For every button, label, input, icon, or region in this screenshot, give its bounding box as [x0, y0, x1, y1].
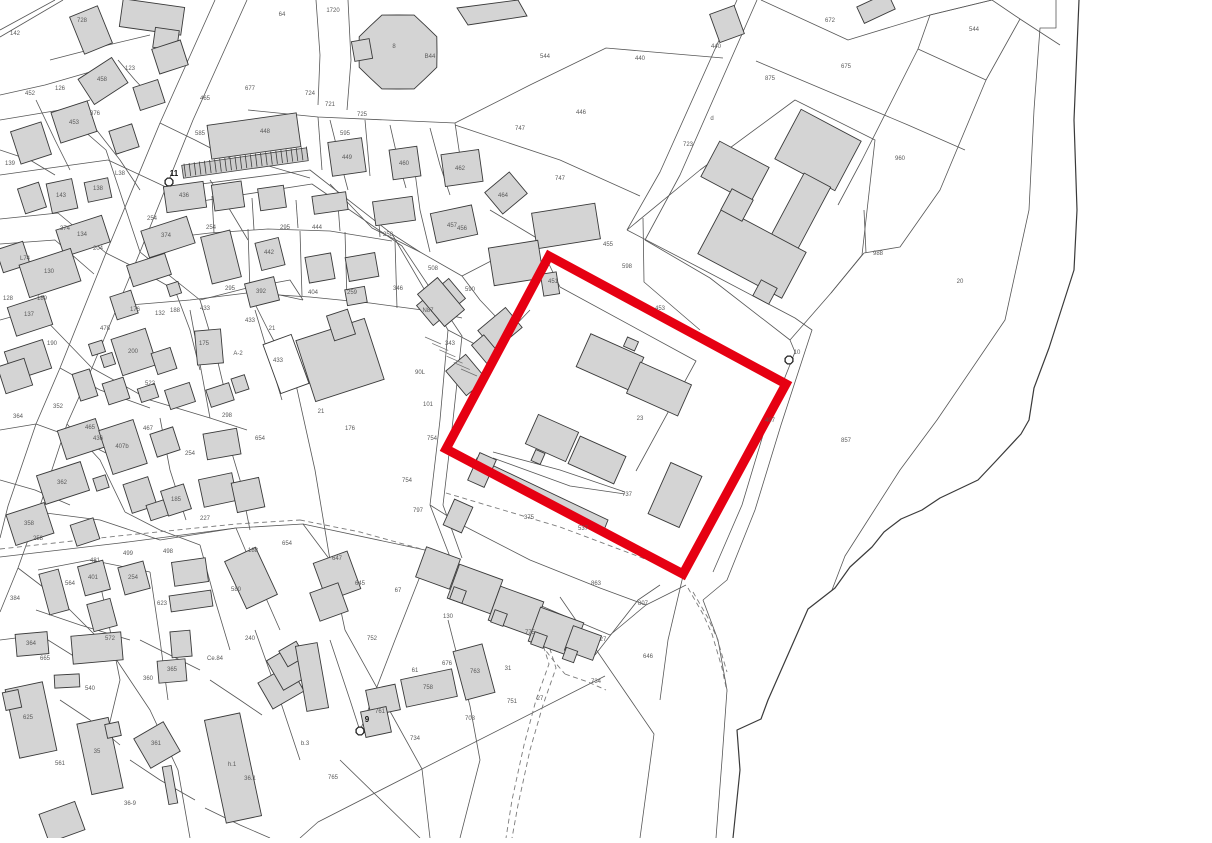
svg-text:20: 20: [957, 279, 964, 285]
svg-text:703: 703: [465, 716, 476, 722]
svg-text:763: 763: [470, 669, 481, 675]
svg-text:758: 758: [423, 685, 434, 691]
svg-text:440: 440: [711, 44, 722, 50]
svg-text:458: 458: [97, 77, 108, 83]
svg-text:623: 623: [157, 601, 168, 607]
svg-text:188: 188: [170, 308, 181, 314]
svg-text:754: 754: [427, 436, 438, 442]
svg-text:132: 132: [155, 311, 166, 317]
svg-text:1720: 1720: [326, 8, 340, 14]
svg-text:A-2: A-2: [233, 351, 243, 357]
svg-text:724: 724: [305, 91, 316, 97]
svg-text:734: 734: [591, 679, 602, 685]
svg-text:725: 725: [357, 112, 368, 118]
svg-text:142: 142: [10, 31, 21, 37]
svg-text:444: 444: [312, 225, 323, 231]
svg-text:453: 453: [655, 306, 666, 312]
svg-text:465: 465: [200, 96, 211, 102]
svg-text:64: 64: [279, 12, 286, 18]
svg-text:L74: L74: [20, 256, 31, 262]
svg-text:139: 139: [5, 161, 16, 167]
svg-text:352: 352: [53, 404, 64, 410]
svg-text:665: 665: [40, 656, 51, 662]
svg-text:564: 564: [65, 581, 76, 587]
svg-text:478: 478: [100, 326, 111, 332]
svg-text:295: 295: [225, 286, 236, 292]
svg-text:404: 404: [308, 290, 319, 296]
svg-text:254: 254: [147, 216, 158, 222]
svg-text:734: 734: [410, 736, 421, 742]
svg-text:407: 407: [765, 418, 776, 424]
svg-text:407b: 407b: [115, 444, 129, 450]
svg-text:90L: 90L: [415, 370, 426, 376]
svg-text:61: 61: [412, 668, 419, 674]
svg-text:362: 362: [57, 480, 68, 486]
svg-text:456: 456: [457, 226, 468, 232]
svg-text:460: 460: [399, 161, 410, 167]
svg-text:625: 625: [23, 715, 34, 721]
svg-text:765: 765: [328, 775, 339, 781]
svg-text:227: 227: [200, 516, 211, 522]
svg-text:295: 295: [280, 225, 291, 231]
svg-text:467: 467: [143, 426, 154, 432]
svg-text:364: 364: [26, 641, 37, 647]
svg-text:561: 561: [55, 761, 66, 767]
svg-text:452: 452: [25, 91, 36, 97]
svg-text:797: 797: [413, 508, 424, 514]
svg-text:572: 572: [105, 636, 116, 642]
svg-text:747: 747: [555, 176, 566, 182]
svg-text:375: 375: [524, 515, 535, 521]
svg-text:259: 259: [347, 290, 358, 296]
svg-text:128: 128: [3, 296, 14, 302]
svg-text:L38: L38: [115, 171, 126, 177]
svg-text:365: 365: [167, 667, 178, 673]
svg-text:677: 677: [245, 86, 256, 92]
svg-text:254: 254: [128, 575, 139, 581]
svg-text:857: 857: [841, 438, 852, 444]
svg-text:130: 130: [44, 269, 55, 275]
svg-text:728: 728: [77, 18, 88, 24]
svg-text:188: 188: [248, 548, 259, 554]
svg-text:376: 376: [90, 111, 101, 117]
svg-text:130: 130: [443, 614, 454, 620]
svg-text:807: 807: [638, 601, 649, 607]
svg-text:580: 580: [231, 587, 242, 593]
svg-text:N87: N87: [422, 308, 434, 314]
svg-text:433: 433: [273, 358, 284, 364]
svg-text:143: 143: [56, 193, 67, 199]
svg-text:449: 449: [342, 155, 353, 161]
svg-text:392: 392: [256, 289, 267, 295]
svg-text:189: 189: [37, 296, 48, 302]
svg-text:754: 754: [402, 478, 413, 484]
svg-text:654: 654: [255, 436, 266, 442]
svg-text:384: 384: [10, 596, 21, 602]
svg-text:11: 11: [170, 169, 179, 178]
svg-text:508: 508: [428, 266, 439, 272]
svg-text:544: 544: [969, 27, 980, 33]
svg-text:598: 598: [622, 264, 633, 270]
svg-text:721: 721: [325, 102, 336, 108]
svg-text:875: 875: [765, 76, 776, 82]
svg-text:204: 204: [93, 246, 104, 252]
svg-text:d: d: [710, 116, 713, 122]
svg-text:646: 646: [643, 654, 654, 660]
svg-text:863: 863: [591, 581, 602, 587]
svg-text:200: 200: [128, 349, 139, 355]
svg-text:544: 544: [540, 54, 551, 60]
svg-text:10: 10: [794, 350, 801, 356]
svg-text:9: 9: [365, 715, 370, 724]
svg-text:433: 433: [245, 318, 256, 324]
svg-text:31: 31: [505, 666, 512, 672]
svg-text:343: 343: [445, 341, 456, 347]
svg-text:455: 455: [603, 242, 614, 248]
svg-text:361: 361: [151, 741, 162, 747]
svg-text:448: 448: [260, 129, 271, 135]
svg-text:298: 298: [222, 413, 233, 419]
svg-text:654: 654: [282, 541, 293, 547]
svg-text:185: 185: [171, 497, 182, 503]
svg-text:176: 176: [345, 426, 356, 432]
svg-text:440: 440: [635, 56, 646, 62]
svg-text:27: 27: [537, 696, 544, 702]
svg-text:240: 240: [245, 636, 256, 642]
svg-text:647: 647: [332, 556, 343, 562]
svg-text:676: 676: [442, 661, 453, 667]
svg-text:258: 258: [383, 232, 394, 238]
svg-text:465: 465: [85, 425, 96, 431]
svg-text:176: 176: [130, 307, 141, 313]
svg-text:374: 374: [161, 233, 172, 239]
svg-text:645: 645: [355, 581, 366, 587]
svg-text:499: 499: [123, 551, 134, 557]
svg-text:374: 374: [60, 226, 71, 232]
svg-text:254: 254: [206, 225, 217, 231]
svg-text:752: 752: [367, 636, 378, 642]
svg-text:960: 960: [895, 156, 906, 162]
svg-text:B44: B44: [425, 54, 436, 60]
svg-text:723: 723: [683, 142, 694, 148]
svg-text:21: 21: [269, 326, 276, 332]
svg-text:446: 446: [576, 110, 587, 116]
svg-text:498: 498: [163, 549, 174, 555]
svg-text:258: 258: [33, 536, 44, 542]
svg-text:h.1: h.1: [228, 762, 237, 768]
svg-text:453: 453: [69, 120, 80, 126]
svg-text:346: 346: [393, 286, 404, 292]
svg-text:675: 675: [841, 64, 852, 70]
svg-text:464: 464: [498, 193, 509, 199]
svg-text:540: 540: [85, 686, 96, 692]
svg-text:442: 442: [264, 250, 275, 256]
svg-text:462: 462: [455, 166, 466, 172]
svg-text:436: 436: [179, 193, 190, 199]
svg-text:672: 672: [825, 18, 836, 24]
svg-text:21: 21: [318, 409, 325, 415]
svg-text:737: 737: [622, 492, 633, 498]
svg-text:254: 254: [185, 451, 196, 457]
svg-text:67: 67: [395, 588, 402, 594]
svg-text:761: 761: [375, 709, 386, 715]
svg-text:451: 451: [548, 279, 559, 285]
svg-text:23: 23: [637, 416, 644, 422]
svg-text:35: 35: [94, 749, 101, 755]
svg-text:537: 537: [578, 526, 589, 532]
svg-text:138: 138: [93, 186, 104, 192]
svg-text:175: 175: [199, 341, 210, 347]
svg-text:751: 751: [507, 699, 518, 705]
svg-text:585: 585: [195, 131, 206, 137]
svg-text:481: 481: [90, 558, 101, 564]
svg-text:36.1: 36.1: [244, 776, 256, 782]
svg-text:775: 775: [525, 630, 536, 636]
svg-text:358: 358: [24, 521, 35, 527]
svg-text:101: 101: [423, 402, 434, 408]
svg-text:27: 27: [600, 637, 607, 643]
svg-text:364: 364: [13, 414, 24, 420]
svg-text:134: 134: [77, 232, 88, 238]
svg-text:36-9: 36-9: [124, 801, 137, 807]
svg-text:595: 595: [340, 131, 351, 137]
svg-text:433: 433: [200, 306, 211, 312]
svg-text:123: 123: [125, 66, 136, 72]
svg-text:747: 747: [515, 126, 526, 132]
svg-text:401: 401: [88, 575, 99, 581]
svg-text:988: 988: [873, 251, 884, 257]
svg-text:Ce.84: Ce.84: [207, 656, 224, 662]
svg-text:b.3: b.3: [301, 741, 310, 747]
svg-text:436: 436: [93, 436, 104, 442]
svg-text:126: 126: [55, 86, 66, 92]
svg-text:360: 360: [143, 676, 154, 682]
svg-text:137: 137: [24, 312, 35, 318]
svg-text:522: 522: [145, 381, 156, 387]
svg-text:190: 190: [47, 341, 58, 347]
svg-text:590: 590: [465, 287, 476, 293]
